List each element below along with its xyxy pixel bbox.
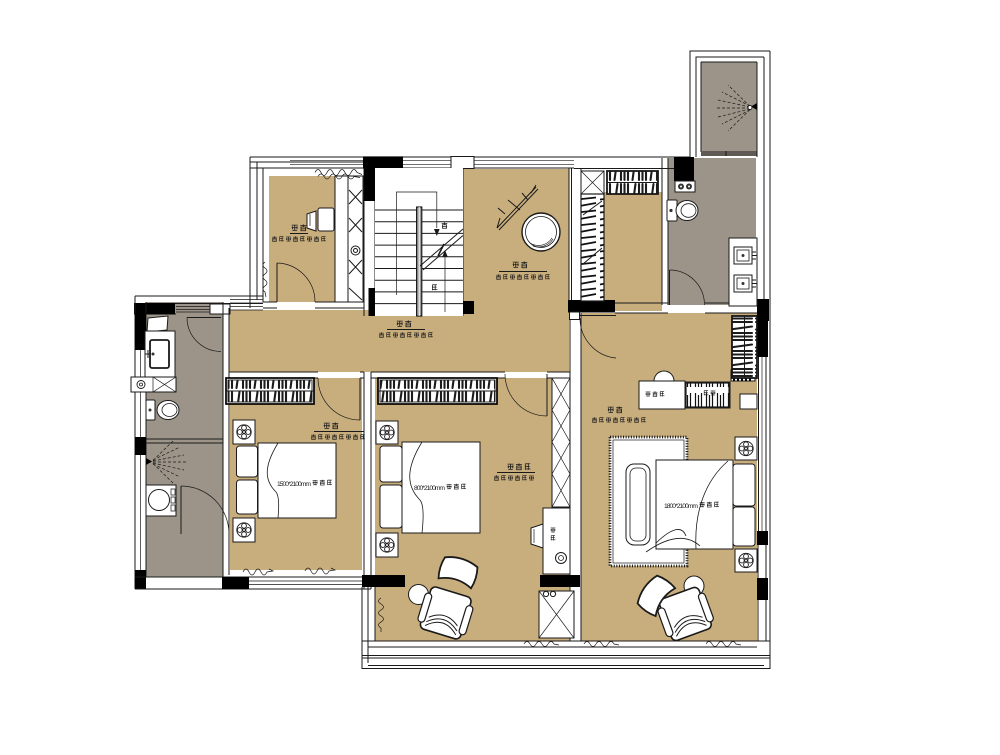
svg-text:1500*2100mm: 1500*2100mm (277, 481, 311, 488)
svg-text:800*2100mm: 800*2100mm (414, 485, 445, 492)
svg-text:1800*2100mm: 1800*2100mm (664, 503, 698, 510)
